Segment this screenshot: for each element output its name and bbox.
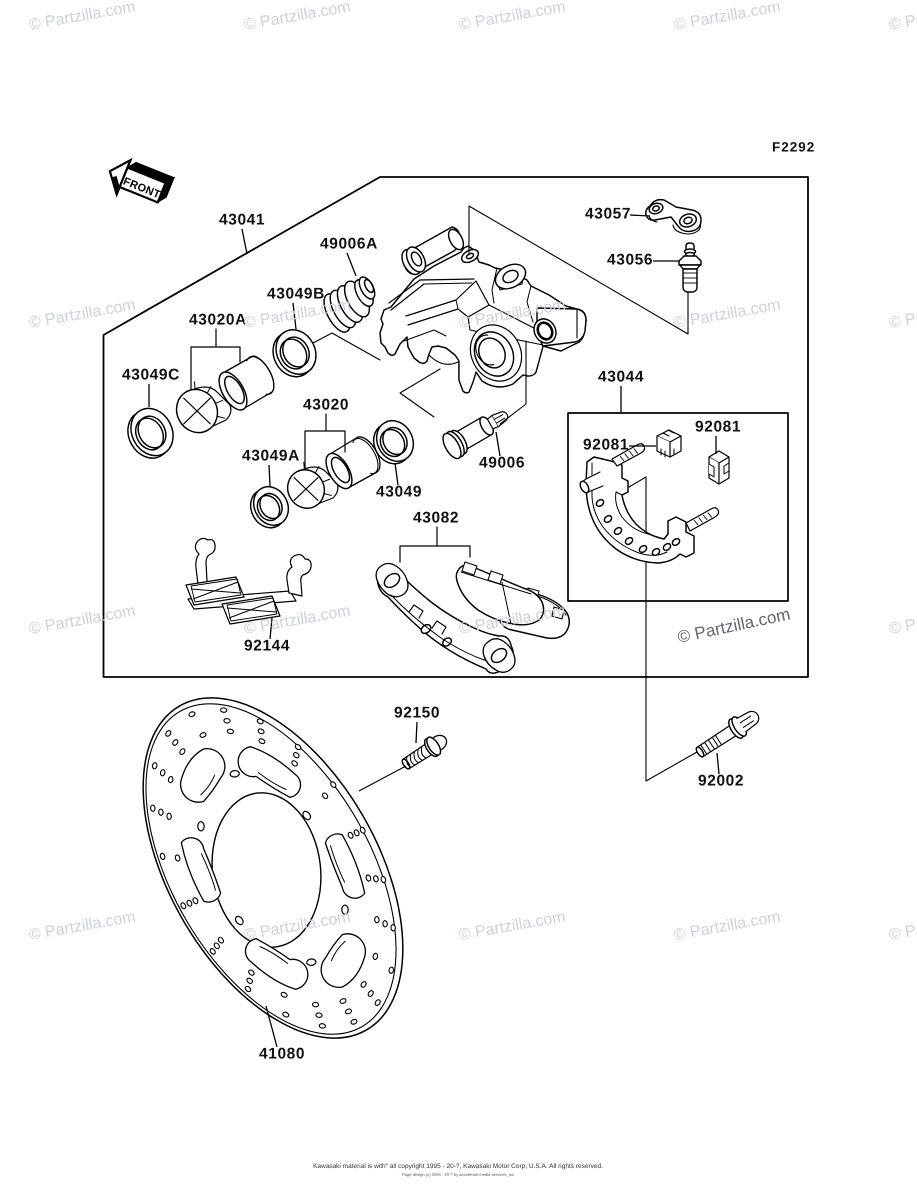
svg-text:43049C: 43049C [122,366,180,383]
svg-text:F2292: F2292 [772,140,815,155]
svg-text:43049B: 43049B [267,285,325,302]
svg-text:43056: 43056 [607,251,653,268]
svg-text:43020A: 43020A [189,311,247,328]
svg-text:43041: 43041 [219,211,265,228]
svg-text:Kawasaki material is with" all: Kawasaki material is with" all copyright… [313,1163,603,1170]
svg-text:43020: 43020 [303,396,349,413]
svg-text:Page design (c) 2004 - 20-? by: Page design (c) 2004 - 20-? by accelerat… [402,1172,514,1177]
svg-text:49006A: 49006A [320,235,378,252]
svg-text:43044: 43044 [598,368,644,385]
svg-text:43049: 43049 [376,483,422,500]
svg-text:49006: 49006 [479,454,525,471]
svg-text:43082: 43082 [413,509,459,526]
svg-text:92081: 92081 [583,436,629,453]
svg-text:92081: 92081 [695,418,741,435]
svg-text:43057: 43057 [585,205,631,222]
svg-text:92002: 92002 [698,772,744,789]
svg-text:43049A: 43049A [242,447,300,464]
svg-text:92144: 92144 [244,637,290,654]
svg-text:92150: 92150 [394,704,440,721]
svg-text:41080: 41080 [259,1045,305,1062]
